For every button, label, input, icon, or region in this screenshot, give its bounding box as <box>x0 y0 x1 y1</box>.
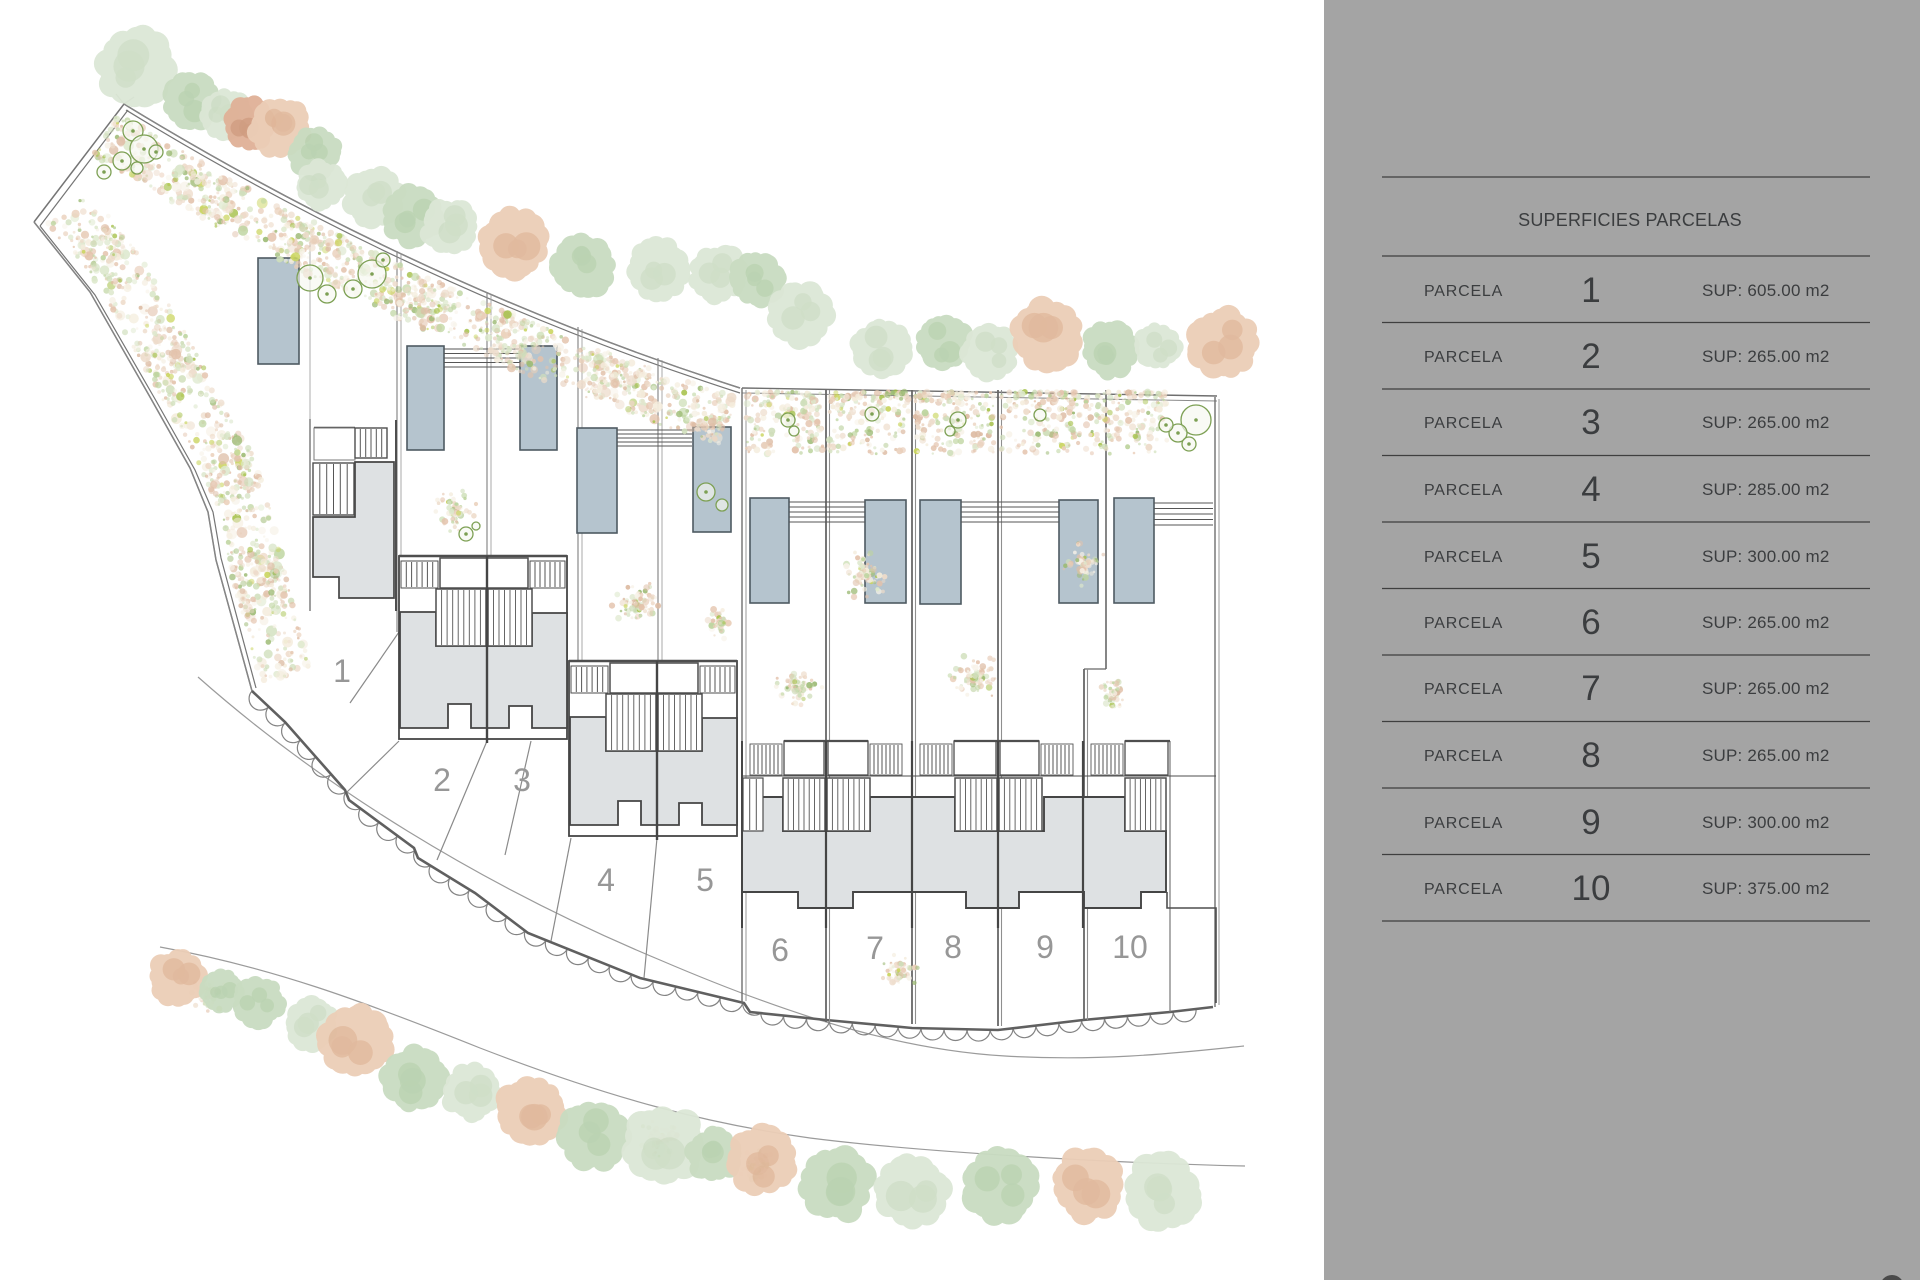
svg-text:PARCELA: PARCELA <box>1424 349 1503 366</box>
svg-text:PARCELA: PARCELA <box>1424 748 1503 765</box>
svg-text:PARCELA: PARCELA <box>1424 881 1503 898</box>
svg-text:2: 2 <box>1581 337 1600 376</box>
svg-text:8: 8 <box>1581 736 1600 775</box>
svg-text:6: 6 <box>771 932 789 968</box>
svg-text:7: 7 <box>866 930 884 966</box>
svg-text:5: 5 <box>696 862 714 898</box>
svg-text:4: 4 <box>1581 470 1600 509</box>
svg-text:PARCELA: PARCELA <box>1424 549 1503 566</box>
svg-text:2: 2 <box>433 762 451 798</box>
svg-text:SUPERFICIES PARCELAS: SUPERFICIES PARCELAS <box>1518 210 1742 230</box>
svg-text:SUP: 265.00 m2: SUP: 265.00 m2 <box>1702 746 1830 765</box>
svg-text:7: 7 <box>1581 669 1600 708</box>
svg-text:9: 9 <box>1581 803 1600 842</box>
svg-text:4: 4 <box>597 862 615 898</box>
svg-text:3: 3 <box>513 762 531 798</box>
svg-text:6: 6 <box>1581 603 1600 642</box>
svg-text:SUP: 285.00 m2: SUP: 285.00 m2 <box>1702 480 1830 499</box>
svg-text:5: 5 <box>1581 537 1600 576</box>
svg-text:8: 8 <box>944 929 962 965</box>
svg-text:1: 1 <box>333 653 351 689</box>
svg-text:SUP: 265.00 m2: SUP: 265.00 m2 <box>1702 347 1830 366</box>
svg-text:PARCELA: PARCELA <box>1424 415 1503 432</box>
svg-text:1: 1 <box>1581 271 1600 310</box>
svg-text:PARCELA: PARCELA <box>1424 482 1503 499</box>
svg-text:10: 10 <box>1572 869 1611 908</box>
svg-text:3: 3 <box>1581 403 1600 442</box>
svg-text:SUP: 375.00 m2: SUP: 375.00 m2 <box>1702 879 1830 898</box>
svg-text:PARCELA: PARCELA <box>1424 615 1503 632</box>
svg-text:SUP: 265.00 m2: SUP: 265.00 m2 <box>1702 679 1830 698</box>
svg-text:SUP: 300.00 m2: SUP: 300.00 m2 <box>1702 547 1830 566</box>
svg-text:PARCELA: PARCELA <box>1424 283 1503 300</box>
svg-text:PARCELA: PARCELA <box>1424 681 1503 698</box>
svg-text:SUP: 605.00 m2: SUP: 605.00 m2 <box>1702 281 1830 300</box>
svg-text:9: 9 <box>1036 929 1054 965</box>
svg-text:10: 10 <box>1112 929 1148 965</box>
svg-text:PARCELA: PARCELA <box>1424 815 1503 832</box>
svg-text:SUP: 265.00 m2: SUP: 265.00 m2 <box>1702 613 1830 632</box>
svg-text:SUP: 265.00 m2: SUP: 265.00 m2 <box>1702 413 1830 432</box>
svg-text:SUP: 300.00 m2: SUP: 300.00 m2 <box>1702 813 1830 832</box>
